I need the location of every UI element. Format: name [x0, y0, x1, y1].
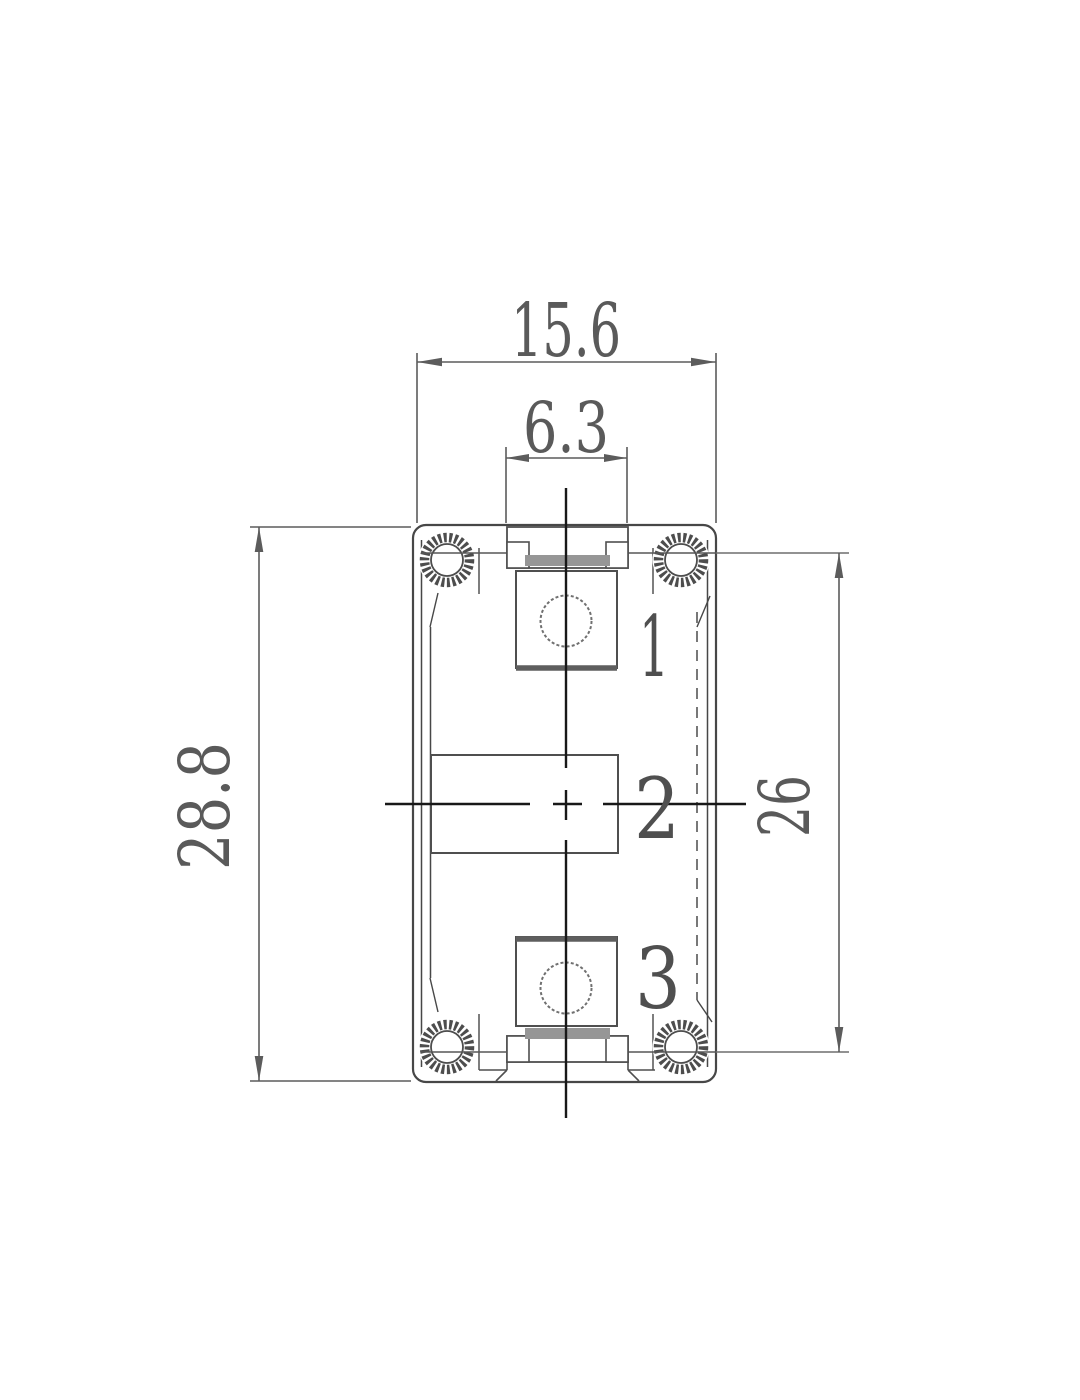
dimension-text-overall-width: 15.6 [511, 288, 621, 374]
terminal-3-ear-right [606, 1036, 628, 1062]
hole-bore [665, 544, 697, 576]
terminal-1 [507, 527, 628, 668]
pin-label-1: 1 [639, 598, 669, 696]
hole-bore [431, 1031, 463, 1063]
hole-bore [665, 1031, 697, 1063]
mounting-hole-top-right [653, 532, 710, 589]
mounting-hole-bottom-left [419, 1019, 476, 1076]
arrowhead-icon [691, 358, 716, 367]
dimension-text-inner-height: 26 [744, 775, 826, 837]
arrowhead-icon [255, 527, 264, 552]
arrowhead-icon [835, 1027, 844, 1052]
dim-inner-height: 26 [716, 553, 849, 1052]
pin-label-2: 2 [634, 760, 680, 858]
terminal-1-contact-strip [525, 555, 610, 566]
terminal-3-ear-left [507, 1036, 529, 1062]
hole-bore [431, 544, 463, 576]
dimension-drawing: 15.6 6.3 28.8 26 1 2 3 [0, 0, 1080, 1400]
arrowhead-icon [255, 1056, 264, 1081]
pin-label-3: 3 [635, 930, 681, 1028]
dimension-text-tab-width: 6.3 [523, 387, 609, 469]
arrowhead-icon [417, 358, 442, 367]
technical-drawing-canvas: 15.6 6.3 28.8 26 1 2 3 [0, 0, 1080, 1400]
dim-overall-height: 28.8 [164, 527, 411, 1081]
dimension-text-overall-height: 28.8 [164, 742, 246, 870]
terminal-3-contact-strip [525, 1028, 610, 1039]
mounting-hole-top-left [419, 532, 476, 589]
arrowhead-icon [835, 553, 844, 578]
